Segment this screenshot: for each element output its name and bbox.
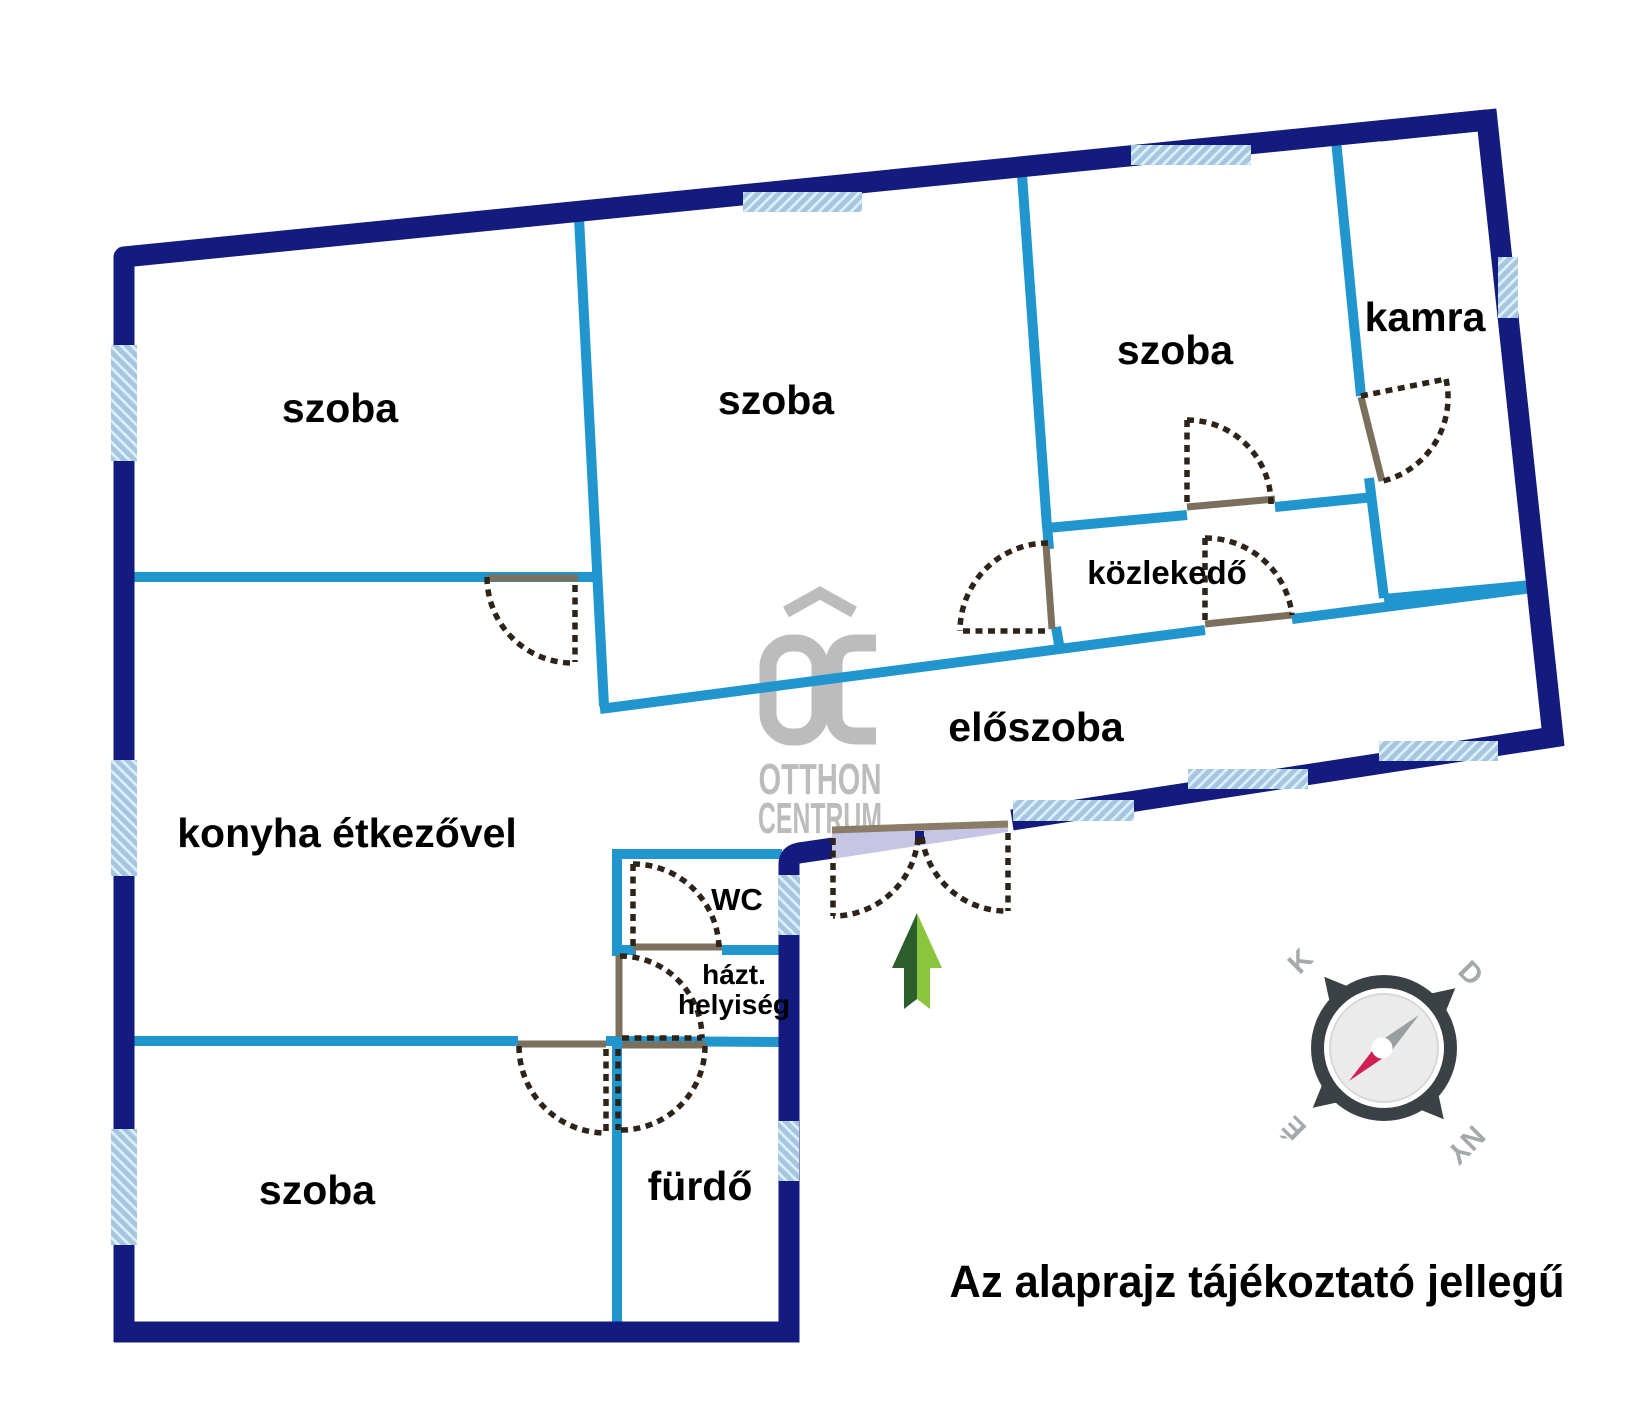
- svg-text:közlekedő: közlekedő: [1087, 554, 1247, 591]
- svg-text:házt.: házt.: [702, 959, 766, 990]
- svg-text:WC: WC: [711, 882, 763, 917]
- svg-text:Az alaprajz tájékoztató jelleg: Az alaprajz tájékoztató jellegű: [950, 1256, 1565, 1307]
- svg-text:szoba: szoba: [282, 385, 399, 431]
- svg-text:kamra: kamra: [1365, 294, 1487, 340]
- svg-text:fürdő: fürdő: [648, 1163, 753, 1209]
- svg-text:előszoba: előszoba: [948, 704, 1125, 750]
- svg-text:szoba: szoba: [1117, 327, 1234, 373]
- svg-text:szoba: szoba: [259, 1167, 376, 1213]
- svg-text:konyha étkezővel: konyha étkezővel: [177, 810, 517, 856]
- svg-text:szoba: szoba: [718, 377, 835, 423]
- svg-text:helyiség: helyiség: [678, 989, 790, 1020]
